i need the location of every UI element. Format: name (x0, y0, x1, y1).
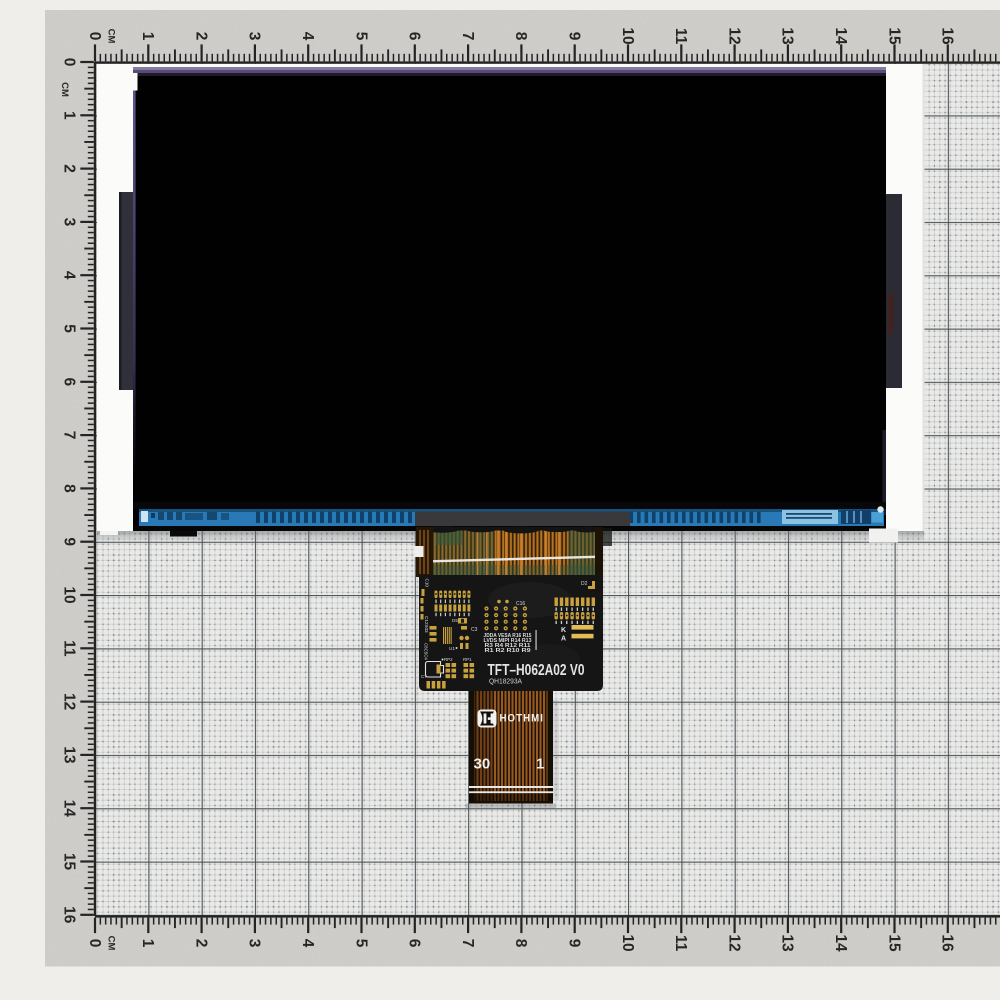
svg-text:1: 1 (536, 756, 544, 773)
svg-text:A: A (561, 636, 566, 643)
svg-text:C10: C10 (425, 579, 430, 588)
svg-text:TFT–H062A02 V0: TFT–H062A02 V0 (488, 662, 585, 679)
svg-text:D5: D5 (452, 618, 458, 623)
svg-text:HOTHMI: HOTHMI (500, 713, 545, 725)
svg-text:30: 30 (474, 756, 491, 773)
svg-text:C7: C7 (421, 674, 427, 679)
svg-text:U1: U1 (449, 646, 455, 651)
svg-text:RP1: RP1 (463, 657, 472, 662)
svg-text:R1 R2 R10 R9: R1 R2 R10 R9 (485, 648, 531, 654)
svg-text:D2: D2 (581, 581, 588, 587)
svg-text:C8C5C4: C8C5C4 (424, 643, 429, 660)
svg-text:C12S03: C12S03 (424, 616, 429, 633)
svg-text:C3: C3 (471, 627, 478, 633)
svg-text:QH18293A: QH18293A (489, 679, 522, 686)
svg-text:K: K (561, 627, 566, 634)
svg-text:C16: C16 (516, 601, 525, 607)
svg-text:RP2: RP2 (444, 657, 453, 662)
